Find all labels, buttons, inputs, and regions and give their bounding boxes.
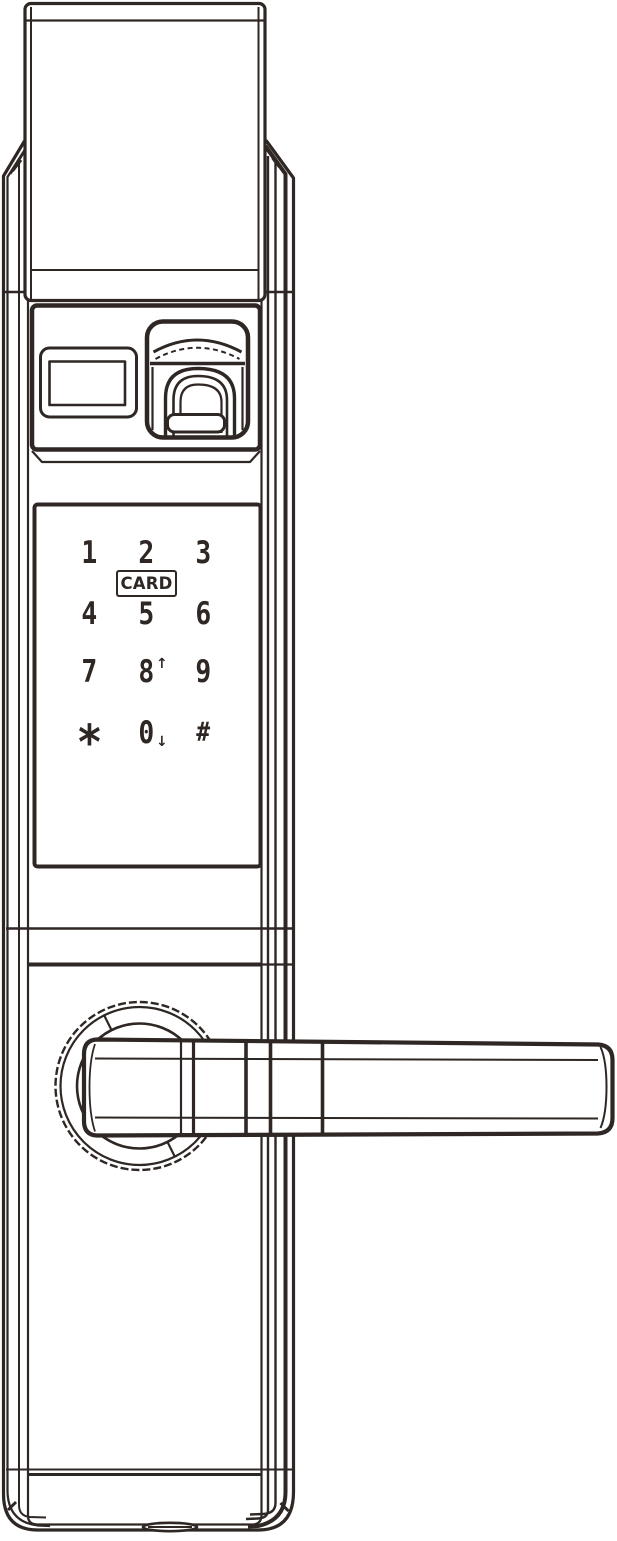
key-star: * xyxy=(67,710,112,755)
key-5-label: 5 xyxy=(139,596,155,632)
keypad: 1 2 3 CARD 4 5 6 7 8 ↑ 9 * xyxy=(0,0,617,1541)
door-lock-diagram: 1 2 3 CARD 4 5 6 7 8 ↑ 9 * xyxy=(0,0,617,1541)
key-1-label: 1 xyxy=(82,535,98,571)
key-7-label: 7 xyxy=(82,654,98,690)
key-8: 8 ↑ xyxy=(124,649,169,694)
key-4-label: 4 xyxy=(82,596,98,632)
key-1: 1 xyxy=(67,530,112,575)
key-3: 3 xyxy=(181,530,226,575)
key-6-label: 6 xyxy=(196,596,212,632)
key-9: 9 xyxy=(181,649,226,694)
key-0-label: 0 xyxy=(139,715,155,751)
key-8-label: 8 xyxy=(139,654,155,690)
key-2-label: 2 xyxy=(139,535,155,571)
key-hash-label: # xyxy=(197,717,211,748)
key-5: 5 xyxy=(124,591,169,636)
scroll-down-arrow-icon: ↓ xyxy=(156,735,168,749)
key-4: 4 xyxy=(67,591,112,636)
key-6: 6 xyxy=(181,591,226,636)
key-2: 2 xyxy=(124,530,169,575)
key-star-label: * xyxy=(76,715,102,771)
key-3-label: 3 xyxy=(196,535,212,571)
scroll-up-arrow-icon: ↑ xyxy=(156,657,168,671)
key-7: 7 xyxy=(67,649,112,694)
key-0: 0 ↓ xyxy=(124,710,169,755)
key-9-label: 9 xyxy=(196,654,212,690)
key-hash: # xyxy=(181,710,226,755)
